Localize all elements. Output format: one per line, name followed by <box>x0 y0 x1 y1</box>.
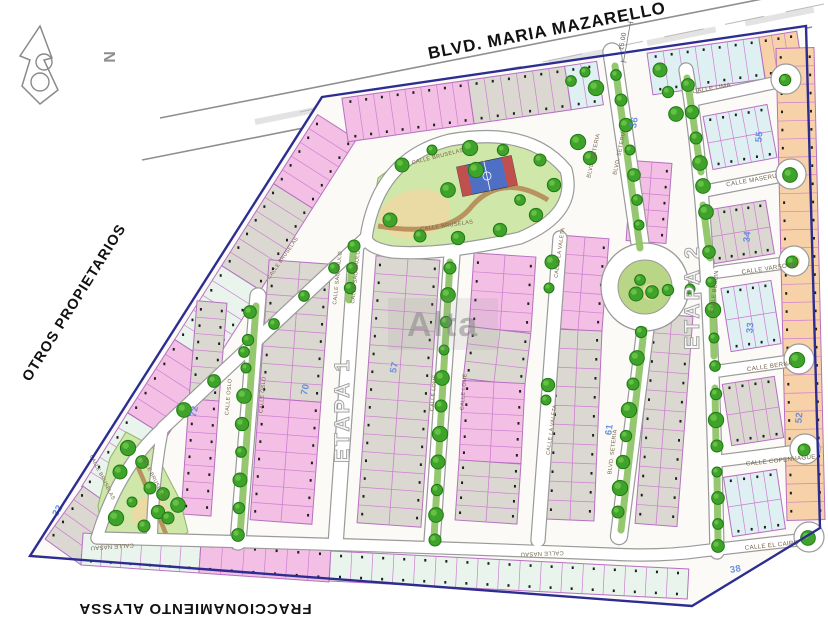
block-number: 70 <box>299 383 312 396</box>
site-plan-map: CALLE BRUSELASCALLE BRUSELASCALLE BRUSEL… <box>0 0 828 622</box>
north-arrow-icon <box>20 26 58 104</box>
block-number: 52 <box>794 412 806 424</box>
west-neighbor-label: OTROS PROPIETARIOS <box>20 221 130 384</box>
compass-letter: N <box>100 51 117 63</box>
phase-label-etapa-2: ETAPA 2 <box>681 244 704 350</box>
road-dimension-text: 15.00 <box>618 32 628 51</box>
watermark: Alta <box>388 298 498 350</box>
site-plan-svg: CALLE BRUSELASCALLE BRUSELASCALLE BRUSEL… <box>0 0 828 622</box>
block-number: 61 <box>603 423 616 436</box>
block-number: 36 <box>628 116 641 129</box>
block-number: 57 <box>388 361 401 374</box>
block-number: 55 <box>754 130 766 142</box>
block-number: 38 <box>729 563 742 576</box>
watermark-text: Alta <box>407 306 479 344</box>
block-number: 33 <box>745 322 757 334</box>
roundabout <box>601 243 689 331</box>
block-number: 34 <box>742 230 754 242</box>
south-neighbor-label: FRACCIONAMIENTO ALYSSA <box>78 600 311 617</box>
block-number: 72 <box>188 405 201 418</box>
phase-label-etapa-1: ETAPA 1 <box>331 357 354 463</box>
